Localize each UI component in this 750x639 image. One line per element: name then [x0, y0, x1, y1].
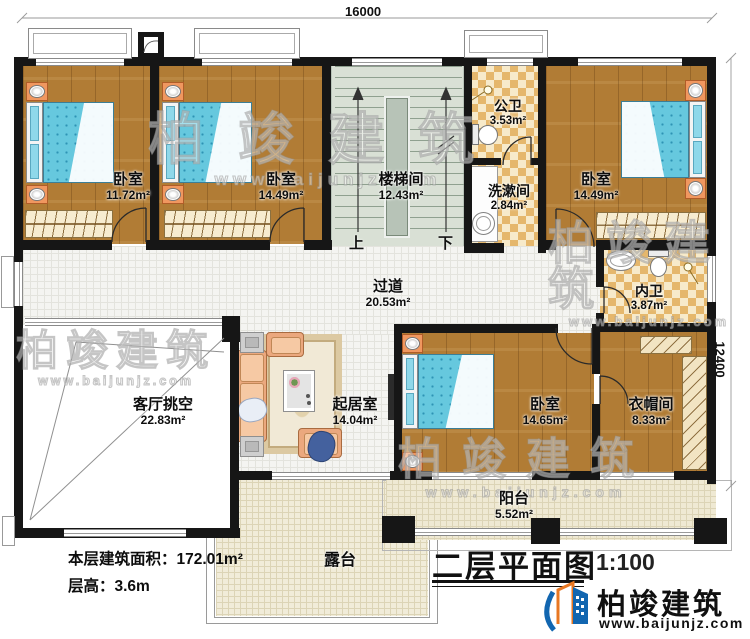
bed-headboard	[26, 102, 43, 183]
column	[694, 518, 727, 544]
nightstand	[26, 185, 48, 204]
floor-plan: 柏竣建筑www.baijunjz.com 柏竣建筑www.baijunjz.co…	[0, 0, 750, 639]
toilet-icon	[478, 125, 498, 145]
coffee-table	[283, 370, 315, 412]
wardrobe	[25, 210, 113, 238]
exterior-notch	[2, 516, 15, 546]
wall	[238, 471, 272, 480]
exterior-notch	[1, 256, 14, 308]
toilet-icon	[650, 257, 667, 277]
bed	[43, 102, 114, 183]
void-railing	[25, 318, 222, 326]
room-label-balcony: 阳台5.52m²	[495, 491, 533, 521]
wall	[150, 57, 159, 250]
stair-divider	[386, 98, 408, 236]
sink-icon	[472, 212, 495, 235]
wardrobe	[596, 212, 706, 239]
nightstand	[402, 452, 423, 471]
stair-down-label: 下	[438, 232, 453, 253]
armchair	[266, 332, 304, 357]
wall	[14, 240, 112, 250]
stair-landing-treads	[335, 66, 462, 96]
balcony-railing	[415, 528, 531, 536]
wall	[304, 240, 332, 250]
room-label-stairwell: 楼梯间12.43m²	[378, 172, 423, 202]
wall	[394, 324, 558, 333]
window	[487, 58, 533, 66]
window	[272, 472, 390, 480]
wall	[596, 323, 710, 332]
window	[36, 58, 124, 66]
wall	[390, 471, 432, 480]
room-label-cloakroom: 衣帽间8.33m²	[628, 397, 673, 427]
wall	[592, 333, 600, 374]
floor-area-text: 本层建筑面积：172.01m²	[68, 546, 243, 573]
flowers-icon	[288, 376, 301, 389]
wall	[532, 471, 600, 480]
room-label-public-bath: 公卫3.53m²	[490, 99, 526, 128]
cloak-rack	[682, 356, 707, 470]
bed-headboard	[162, 102, 179, 183]
dimension-right: 12400	[713, 341, 728, 377]
room-label-bedroom-4: 卧室14.65m²	[523, 397, 568, 427]
room-label-bedroom-2: 卧室14.49m²	[259, 172, 304, 202]
wall	[230, 325, 239, 538]
title-underline-thin	[432, 586, 584, 587]
balcony-railing	[560, 528, 694, 536]
window	[202, 58, 292, 66]
nightstand	[402, 334, 423, 353]
window	[14, 262, 23, 306]
wall	[146, 240, 270, 250]
wall	[464, 57, 472, 253]
wall	[544, 240, 556, 250]
wall	[592, 324, 600, 333]
brand-url: www.baijunjz.com	[599, 615, 744, 631]
nightstand	[26, 82, 48, 101]
window	[352, 58, 442, 66]
wall	[538, 57, 546, 253]
nightstand	[162, 185, 184, 204]
wall	[592, 404, 600, 474]
stair-up-label: 上	[349, 232, 364, 253]
sofa	[236, 350, 267, 442]
dimension-top: 16000	[345, 4, 381, 19]
side-table	[240, 332, 264, 353]
stair-flight-left	[335, 96, 384, 238]
column	[382, 516, 415, 543]
bed-headboard	[689, 101, 706, 178]
wall	[596, 240, 710, 250]
bed	[179, 102, 252, 183]
toilet-tank	[648, 250, 669, 257]
bed	[621, 101, 689, 178]
room-label-terrace: 露台	[324, 552, 356, 570]
room-label-bedroom-1: 卧室11.72m²	[106, 172, 150, 202]
floor-height-text: 层高：3.6m	[68, 573, 243, 600]
cup-icon	[307, 401, 311, 405]
wardrobe	[164, 210, 271, 238]
nightstand	[685, 178, 706, 199]
bay-window	[28, 28, 132, 59]
living-void-floor	[23, 325, 230, 528]
wall	[674, 471, 716, 480]
window	[578, 58, 682, 66]
wall	[468, 243, 504, 253]
stair-flight-right	[410, 96, 464, 238]
room-label-ensuite-bath: 内卫3.87m²	[631, 284, 667, 313]
window	[707, 256, 716, 302]
nightstand	[685, 80, 706, 101]
flue-inner	[144, 37, 158, 53]
bed-headboard	[402, 354, 418, 429]
bay-window	[194, 28, 300, 59]
wall	[531, 158, 538, 165]
wall	[596, 250, 604, 287]
nightstand	[162, 82, 184, 101]
scale-label: 1:100	[596, 549, 655, 576]
wall	[322, 57, 331, 250]
wall	[468, 158, 501, 165]
side-table	[240, 436, 264, 457]
cloak-rack	[640, 336, 692, 354]
title-underline	[432, 580, 584, 583]
room-label-sitting-room: 起居室14.04m²	[332, 397, 377, 427]
floor-stats: 本层建筑面积：172.01m² 层高：3.6m	[68, 546, 243, 600]
room-label-bedroom-3: 卧室14.49m²	[574, 172, 619, 202]
sink-icon	[606, 250, 636, 271]
window	[432, 472, 532, 480]
bay-window	[464, 30, 548, 58]
cup-icon	[306, 394, 310, 398]
wall	[394, 333, 402, 474]
room-label-washroom: 洗漱间2.84m²	[488, 184, 530, 213]
window	[600, 472, 674, 480]
bed	[418, 354, 494, 429]
window	[64, 529, 186, 537]
room-label-living-void: 客厅挑空22.83m²	[133, 397, 193, 427]
room-label-corridor: 过道20.53m²	[366, 279, 411, 309]
